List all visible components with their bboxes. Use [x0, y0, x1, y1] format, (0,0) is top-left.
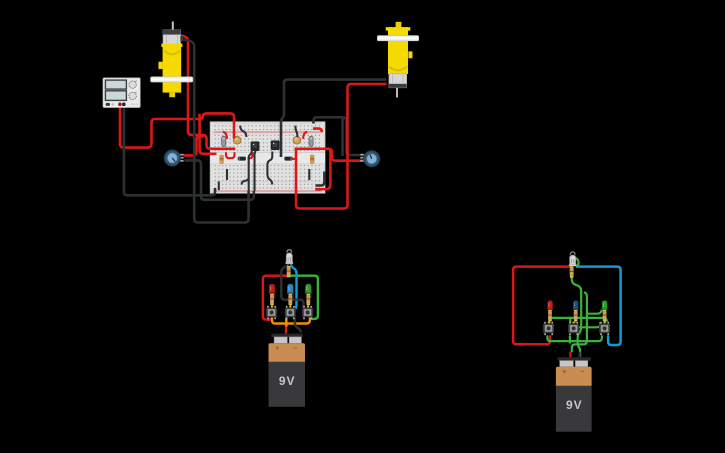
svg-text:9V: 9V: [279, 374, 296, 388]
svg-text:9V: 9V: [566, 398, 583, 412]
